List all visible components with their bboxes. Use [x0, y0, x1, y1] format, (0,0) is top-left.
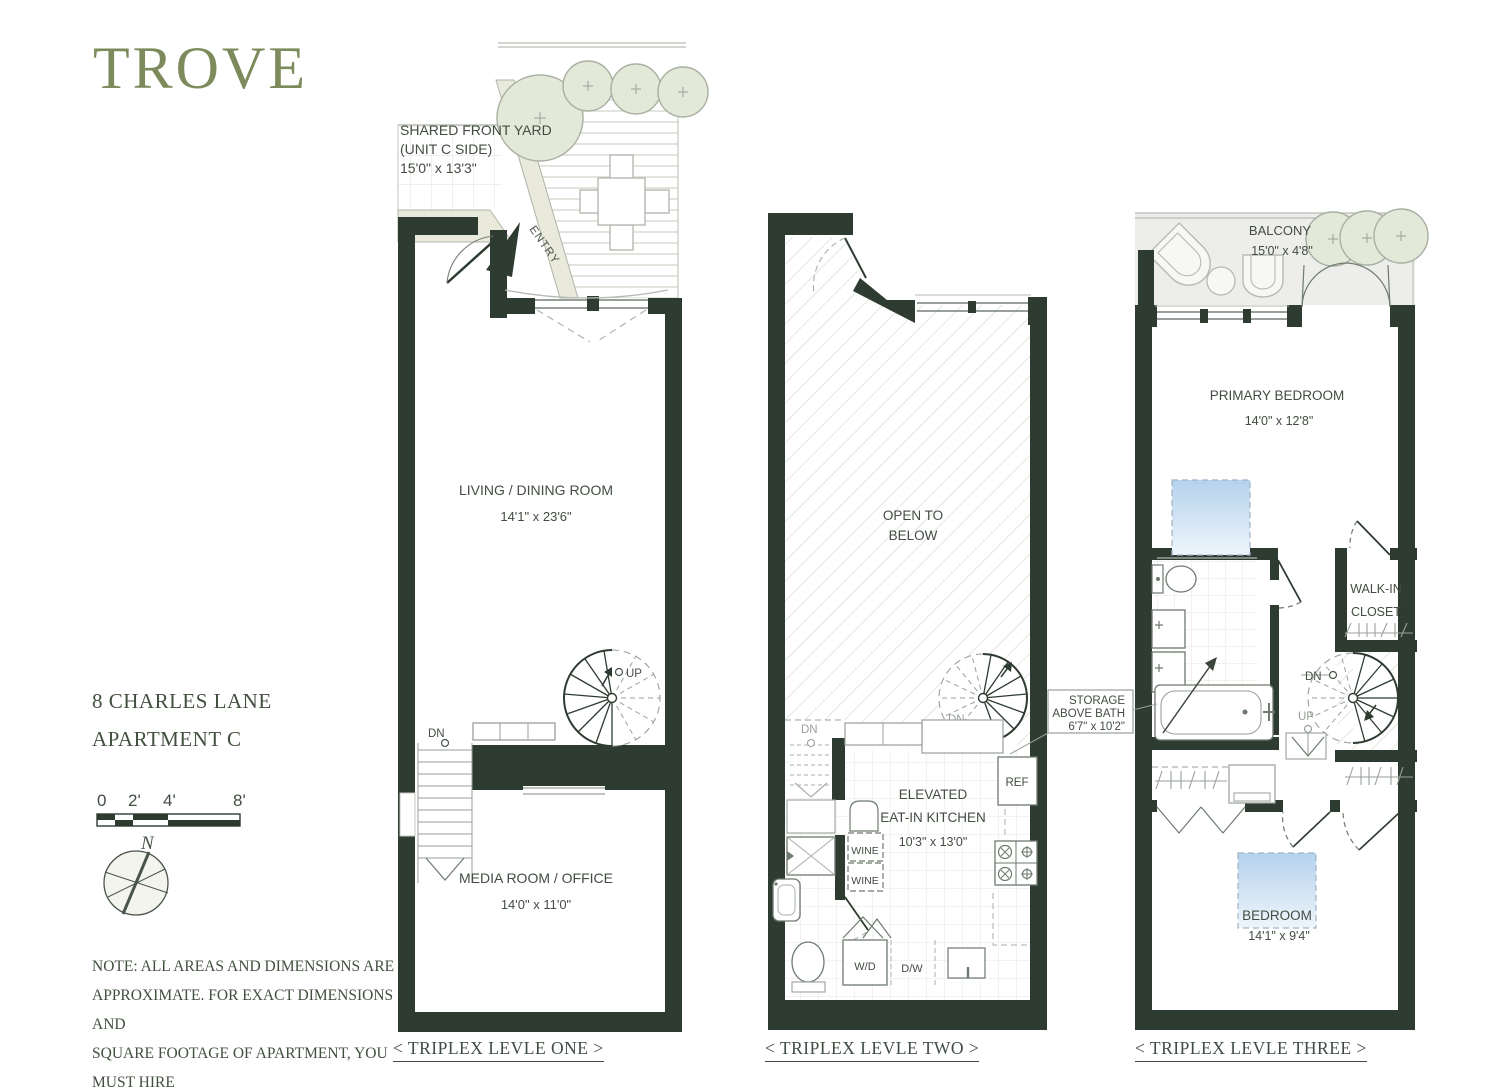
caption-level-one[interactable]: < TRIPLEX LEVLE ONE >	[393, 1038, 604, 1062]
level-three-plan: BALCONY 15'0" x 4'8"	[1005, 205, 1425, 1035]
level-one-plan: SHARED FRONT YARD (UNIT C SIDE) 15'0" x …	[390, 40, 690, 1040]
primary-bedroom-dims: 14'0" x 12'8"	[1245, 414, 1314, 428]
storage-label-2: ABOVE BATH	[1052, 708, 1125, 720]
toilet	[1166, 566, 1196, 592]
l3-dn-label: DN	[1305, 671, 1322, 683]
note-line-3: SQUARE FOOTAGE OF APARTMENT, YOU MUST HI…	[92, 1039, 412, 1092]
kitchen-label-2: EAT-IN KITCHEN	[880, 810, 986, 825]
balcony-chair-2	[1243, 255, 1283, 297]
stair-dn-label: DN	[428, 728, 445, 740]
scale-tick-4: 4'	[163, 791, 176, 810]
note-line-1: NOTE: ALL AREAS AND DIMENSIONS ARE	[92, 952, 412, 981]
caption-level-two[interactable]: < TRIPLEX LEVLE TWO >	[765, 1038, 979, 1062]
storage-label-1: STORAGE	[1069, 695, 1125, 707]
balcony-label: BALCONY	[1249, 223, 1311, 238]
property-address: 8 CHARLES LANE APARTMENT C	[92, 682, 272, 758]
overhead-dn-stair: DN	[790, 724, 832, 798]
skylight-1	[1172, 480, 1250, 555]
understair-closet	[400, 793, 415, 836]
vanity-sink-1	[1152, 610, 1185, 648]
living-room-label: LIVING / DINING ROOM	[459, 482, 613, 498]
wd-label: W/D	[854, 961, 875, 973]
entry-door	[447, 236, 497, 283]
scale-bar-blocks	[97, 814, 240, 826]
cased-opening	[523, 786, 605, 795]
address-line-1: 8 CHARLES LANE	[92, 682, 272, 720]
straight-stair-dn: DN	[418, 728, 472, 883]
open-below-label-2: BELOW	[889, 528, 938, 543]
yard-dims: 15'0" x 13'3"	[400, 160, 477, 176]
scale-tick-0: 0	[97, 791, 106, 810]
level-three-bathroom	[1152, 560, 1275, 740]
dw-label: D/W	[901, 963, 923, 975]
scale-tick-8: 8'	[233, 791, 246, 810]
compass-north-label: N	[140, 833, 155, 854]
balcony-dims: 15'0" x 4'8"	[1251, 244, 1313, 258]
walkin-label-1: WALK-IN	[1350, 582, 1402, 596]
open-below-label-1: OPEN TO	[883, 508, 943, 523]
kitchen-label-1: ELEVATED	[899, 787, 968, 802]
l3-up-label: UP	[1298, 711, 1314, 723]
caption-level-three[interactable]: < TRIPLEX LEVLE THREE >	[1135, 1038, 1367, 1062]
kitchen-counter	[845, 723, 922, 745]
yard-label-1: SHARED FRONT YARD	[400, 122, 552, 138]
wine-label-2: WINE	[851, 875, 878, 887]
balcony-trees	[1306, 209, 1428, 266]
balcony: BALCONY 15'0" x 4'8"	[1135, 209, 1428, 305]
railing	[473, 723, 555, 740]
kitchen-dims: 10'3" x 13'0"	[899, 835, 968, 849]
bedroom-label: BEDROOM	[1242, 908, 1312, 923]
toilet	[792, 942, 824, 982]
balcony-window	[1155, 306, 1289, 323]
address-line-2: APARTMENT C	[92, 720, 272, 758]
media-room-dims: 14'0" x 11'0"	[501, 897, 572, 912]
floorplan-page: { "brand": { "logo": "TROVE" }, "project…	[0, 0, 1500, 1092]
disclaimer-note: NOTE: ALL AREAS AND DIMENSIONS ARE APPRO…	[92, 952, 412, 1092]
wine-fridges: WINE WINE	[848, 801, 883, 891]
note-line-2: APPROXIMATE. FOR EXACT DIMENSIONS AND	[92, 981, 412, 1039]
stair-landing	[922, 720, 1003, 753]
balcony-table	[1207, 267, 1235, 295]
spiral-stair-level1: UP	[564, 650, 660, 746]
living-room-dims: 14'1" x 23'6"	[500, 509, 572, 524]
walkin-label-2: CLOSET	[1351, 605, 1401, 619]
storage-dims: 6'7" x 10'2"	[1068, 721, 1125, 733]
scale-tick-2: 2'	[128, 791, 141, 810]
yard-label-2: (UNIT C SIDE)	[400, 141, 492, 157]
dn-stair-label: DN	[801, 724, 818, 736]
wine-label-1: WINE	[851, 845, 878, 857]
primary-bedroom-label: PRIMARY BEDROOM	[1210, 388, 1345, 403]
compass: N	[95, 833, 187, 925]
bedroom-dims: 14'1" x 9'4"	[1248, 929, 1310, 943]
media-room-label: MEDIA ROOM / OFFICE	[459, 870, 613, 886]
scale-bar: 0 2' 4' 8'	[92, 790, 262, 836]
storage-above-bath-callout: STORAGE ABOVE BATH 6'7" x 10'2"	[1010, 690, 1157, 754]
spiral-stair-level3: DN UP	[1286, 652, 1398, 759]
trove-logo: TROVE	[93, 34, 308, 103]
stair-up-label: UP	[626, 668, 642, 680]
